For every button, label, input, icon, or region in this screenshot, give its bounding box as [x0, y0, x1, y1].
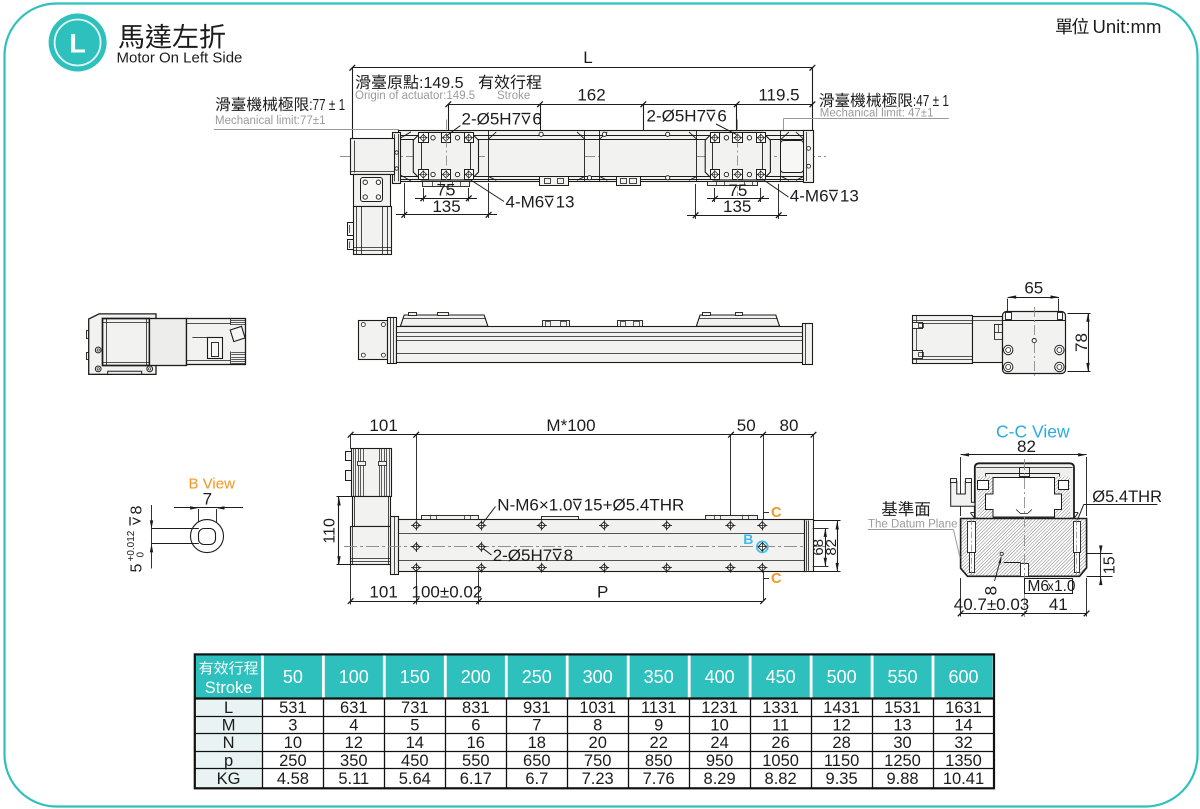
svg-text:Unit:mm: Unit:mm	[1093, 16, 1162, 37]
svg-text:550: 550	[462, 752, 490, 770]
svg-text:KG: KG	[217, 770, 241, 788]
svg-text:400: 400	[705, 667, 735, 687]
svg-text:C: C	[771, 505, 782, 521]
svg-text:28: 28	[832, 734, 850, 752]
svg-text:10: 10	[284, 734, 302, 752]
svg-text:26: 26	[771, 734, 789, 752]
svg-text:631: 631	[340, 699, 368, 717]
svg-text:10: 10	[710, 717, 728, 735]
svg-text:80: 80	[780, 416, 799, 435]
svg-text:150: 150	[400, 667, 430, 687]
svg-text:831: 831	[462, 699, 490, 717]
svg-text:M: M	[222, 717, 236, 735]
svg-text:4-M6: 4-M6	[506, 193, 545, 212]
svg-text:101: 101	[369, 583, 397, 602]
svg-text:6: 6	[471, 717, 480, 735]
svg-text:24: 24	[710, 734, 728, 752]
svg-text:1631: 1631	[945, 699, 982, 717]
svg-text:15: 15	[1102, 556, 1119, 574]
svg-text:13: 13	[556, 193, 575, 212]
svg-text:100: 100	[339, 667, 369, 687]
svg-text:650: 650	[523, 752, 551, 770]
svg-text:110: 110	[322, 518, 339, 544]
svg-text:The Datum Plane: The Datum Plane	[868, 519, 958, 531]
svg-text:8.29: 8.29	[704, 770, 736, 788]
svg-text:18: 18	[528, 734, 546, 752]
svg-text:41: 41	[1049, 595, 1068, 614]
svg-text:8: 8	[982, 586, 1001, 595]
svg-text:2-Ø5H7: 2-Ø5H7	[462, 110, 522, 129]
svg-text:1050: 1050	[762, 752, 799, 770]
svg-text:1331: 1331	[762, 699, 799, 717]
svg-text:750: 750	[584, 752, 612, 770]
svg-text:135: 135	[723, 197, 751, 216]
svg-text:1431: 1431	[823, 699, 860, 717]
svg-text:7: 7	[203, 490, 212, 509]
svg-text:2-Ø5H7: 2-Ø5H7	[493, 546, 553, 565]
svg-text:5: 5	[410, 717, 419, 735]
svg-text:M6: M6	[1028, 578, 1050, 595]
svg-text:13: 13	[840, 187, 859, 206]
svg-text:1231: 1231	[701, 699, 738, 717]
svg-text:L: L	[69, 29, 86, 59]
svg-text:4.58: 4.58	[277, 770, 309, 788]
svg-text:5.64: 5.64	[399, 770, 431, 788]
svg-text:300: 300	[583, 667, 613, 687]
svg-text:100±0.02: 100±0.02	[412, 583, 483, 602]
svg-text:731: 731	[401, 699, 429, 717]
svg-text:3: 3	[288, 717, 297, 735]
svg-text:32: 32	[954, 734, 972, 752]
svg-text:Ø5.4THR: Ø5.4THR	[1092, 488, 1162, 506]
svg-text:22: 22	[650, 734, 668, 752]
svg-text:7.23: 7.23	[582, 770, 614, 788]
svg-text:82: 82	[823, 539, 840, 556]
svg-text:16: 16	[467, 734, 485, 752]
svg-text:450: 450	[766, 667, 796, 687]
svg-text:101: 101	[369, 416, 397, 435]
svg-text:9.88: 9.88	[886, 770, 918, 788]
svg-text:8: 8	[129, 506, 146, 515]
svg-text:850: 850	[645, 752, 673, 770]
svg-text:20: 20	[589, 734, 607, 752]
svg-text:P: P	[597, 583, 608, 602]
svg-text:65: 65	[1024, 279, 1043, 298]
svg-text:4: 4	[349, 717, 358, 735]
svg-text:6: 6	[717, 107, 726, 126]
svg-text:4-M6: 4-M6	[790, 187, 829, 206]
svg-text:M*100: M*100	[546, 416, 595, 435]
svg-text:50: 50	[737, 416, 756, 435]
svg-text:531: 531	[279, 699, 307, 717]
svg-text:200: 200	[461, 667, 491, 687]
svg-text:6: 6	[532, 110, 541, 129]
svg-text:50: 50	[283, 667, 303, 687]
svg-text:N-M6×1.0: N-M6×1.0	[497, 496, 572, 515]
svg-text:119.5: 119.5	[758, 86, 799, 105]
svg-text:10.41: 10.41	[943, 770, 984, 788]
svg-text:1150: 1150	[824, 752, 859, 770]
svg-text:9: 9	[654, 717, 663, 735]
svg-text:6.17: 6.17	[460, 770, 492, 788]
svg-text:12: 12	[832, 717, 850, 735]
svg-text:1131: 1131	[641, 699, 676, 717]
svg-text:350: 350	[644, 667, 674, 687]
svg-text:950: 950	[706, 752, 734, 770]
svg-text:15+Ø5.4THR: 15+Ø5.4THR	[584, 496, 685, 515]
svg-text:8.82: 8.82	[765, 770, 797, 788]
svg-text:p: p	[224, 752, 233, 770]
svg-text::77 ± 1: :77 ± 1	[309, 97, 345, 114]
svg-text:1.0: 1.0	[1054, 578, 1076, 595]
svg-text:7.76: 7.76	[643, 770, 675, 788]
svg-text:2-Ø5H7: 2-Ø5H7	[647, 107, 707, 126]
svg-text:5.11: 5.11	[338, 770, 369, 788]
svg-text:8: 8	[564, 546, 573, 565]
svg-text:B: B	[743, 531, 753, 547]
svg-text:14: 14	[406, 734, 424, 752]
svg-text:931: 931	[523, 699, 551, 717]
svg-text:L: L	[583, 48, 592, 67]
svg-text:L: L	[224, 699, 233, 717]
svg-text:550: 550	[887, 667, 917, 687]
svg-text:500: 500	[827, 667, 857, 687]
svg-text:250: 250	[522, 667, 552, 687]
svg-text:9.35: 9.35	[826, 770, 858, 788]
svg-text:Mechanical limit: 47±1: Mechanical limit: 47±1	[820, 108, 934, 120]
svg-text:Origin of actuator:149.5: Origin of actuator:149.5	[355, 90, 475, 102]
svg-text:78: 78	[1072, 333, 1091, 352]
svg-text:Motor On Left Side: Motor On Left Side	[117, 50, 243, 67]
svg-text:250: 250	[279, 752, 307, 770]
svg-text:C: C	[771, 571, 782, 587]
svg-text:600: 600	[948, 667, 978, 687]
svg-text:30: 30	[893, 734, 911, 752]
svg-text:5: 5	[129, 564, 146, 573]
svg-text:0: 0	[136, 552, 147, 558]
svg-text:Mechanical limit:77±1: Mechanical limit:77±1	[215, 115, 326, 127]
svg-text:40.7±0.03: 40.7±0.03	[954, 595, 1030, 614]
svg-text:8: 8	[593, 717, 602, 735]
svg-text:7: 7	[532, 717, 541, 735]
svg-text:Stroke: Stroke	[205, 679, 253, 697]
svg-text:82: 82	[1017, 437, 1036, 456]
svg-text:162: 162	[577, 86, 605, 105]
svg-text:N: N	[223, 734, 235, 752]
svg-text:13: 13	[893, 717, 911, 735]
svg-text:6.7: 6.7	[525, 770, 548, 788]
svg-text:1531: 1531	[884, 699, 921, 717]
svg-text:350: 350	[340, 752, 368, 770]
svg-text:14: 14	[954, 717, 972, 735]
svg-text:12: 12	[345, 734, 363, 752]
svg-text:1350: 1350	[945, 752, 982, 770]
svg-text:450: 450	[401, 752, 429, 770]
svg-text:135: 135	[432, 197, 460, 216]
svg-text:1031: 1031	[579, 699, 616, 717]
svg-text:11: 11	[772, 717, 789, 735]
svg-text:1250: 1250	[884, 752, 921, 770]
svg-text:Stroke: Stroke	[497, 90, 530, 102]
